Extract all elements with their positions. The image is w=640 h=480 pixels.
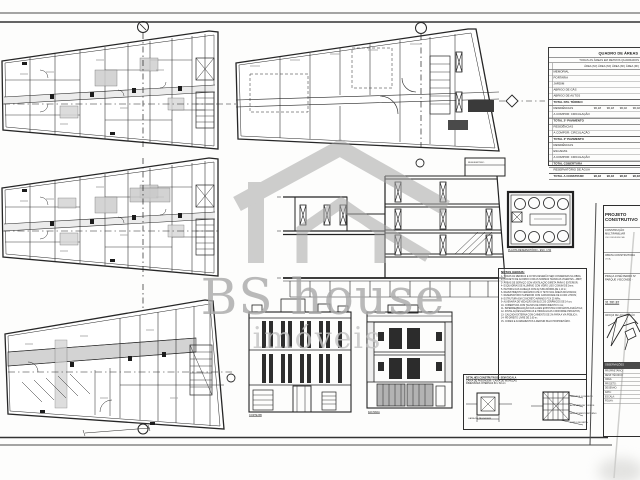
- roof-terrace-plan: [236, 23, 545, 168]
- detail-left-label: CAIXA DE PASSAGEM: [468, 417, 508, 420]
- titleblock-owner: OBATA CONSTRUTORA LTDA.: [604, 253, 640, 274]
- croqui-area: [604, 320, 640, 363]
- architectural-plan-photo: QUADRO DE ÁREAS TODAS AS ÁREAS EM METROS…: [0, 0, 640, 480]
- notes-lines: 1- TODAS AS MEDIDAS E COTAS DEVERÃO SER …: [501, 275, 585, 323]
- address-line2: PARQUE VISCONDE -: [605, 279, 640, 283]
- titleblock-header: PROJETO CONSTRUTIVO: [604, 206, 640, 228]
- titleblock-area: 31.281,82: [604, 300, 640, 313]
- fachada-label: FACHADA: [368, 411, 408, 414]
- titleblock-address: PRAÇA JOSÉ PEDRO Nº PARQUE VISCONDE -: [604, 274, 640, 300]
- floor-plan-2nd: [2, 31, 218, 149]
- area-table-title: QUADRO DE ÁREAS: [549, 48, 640, 58]
- area-value: 31.281,82: [605, 301, 619, 305]
- title-block: PROJETO CONSTRUTIVO CONSTRUÇÃO MULTIFAMI…: [603, 205, 640, 437]
- area-table-rows: MEMORIALPORTARIAJARDIMABRIGO DE GÁSABRIG…: [549, 70, 640, 181]
- watermark-subtitle: imóveis: [240, 321, 395, 356]
- general-notes-box: NOTAS GERAIS: 1- TODAS AS MEDIDAS E COTA…: [498, 268, 587, 380]
- penthouse-label: RESERVATÓRIO: [468, 161, 503, 164]
- corte-label: CORTE BB: [249, 414, 289, 417]
- details-title: DETALHES CONSTRUTIVOS - SEM ESCALA CAIXA…: [466, 377, 576, 385]
- titleblock-use: CONSTRUÇÃO MULTIFAMILIAR USO RESIDENCIAL: [604, 228, 640, 253]
- reservoir-plan: [508, 192, 573, 247]
- note-line: 15- CORES E ACABAMENTOS A DEFINIR PELO P…: [501, 320, 585, 323]
- titleblock-rows: PROPRIETÁRIO:RESP. TÉCNICO:CREA:PROJETO:…: [604, 369, 640, 403]
- floor-plan-3rd: [2, 158, 218, 276]
- area-table-row: TOTAL A CONSTRUIR96,1896,1896,0296,02: [549, 174, 640, 181]
- notes-title: NOTAS GERAIS:: [501, 271, 585, 274]
- owner-line2: LTDA.: [605, 258, 640, 261]
- titleblock-row: FOLHA:: [604, 399, 640, 403]
- area-table-index-rule: [553, 63, 554, 165]
- area-table: QUADRO DE ÁREAS TODAS AS ÁREAS EM METROS…: [548, 47, 640, 166]
- details-title-line3: DIMENSÕES INTERNAS 60 x 60 cm: [466, 383, 576, 386]
- watermark-house-logo: [237, 148, 446, 263]
- reservoir-plan-label: PLANTA RESERVATÓRIO - ESC. 1:50: [508, 249, 553, 252]
- use-line1: CONSTRUÇÃO MULTIFAMILIAR: [605, 229, 640, 236]
- use-line2: USO RESIDENCIAL: [605, 236, 640, 239]
- watermark-title: BS house: [178, 268, 468, 326]
